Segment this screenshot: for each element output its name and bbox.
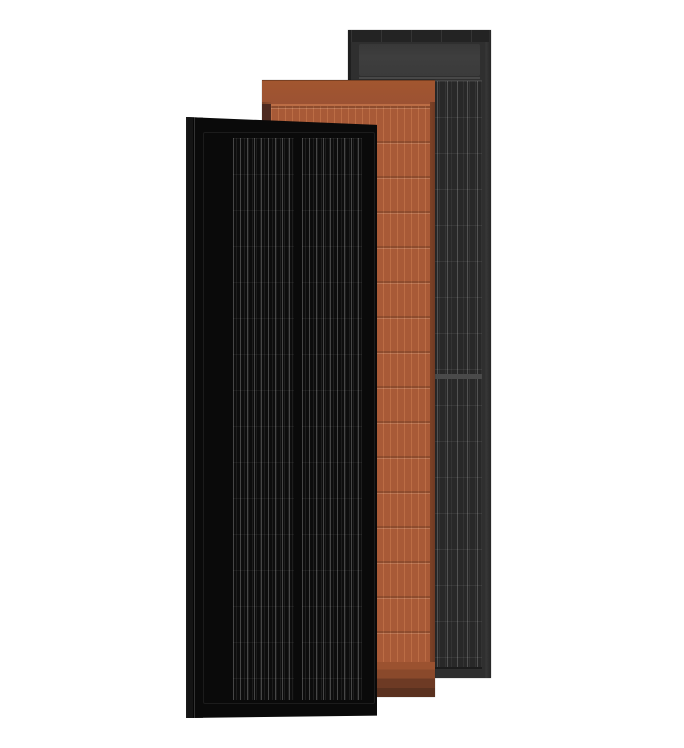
black-solar-panel [186, 117, 377, 718]
product-stage [0, 0, 684, 748]
terracotta-panel-header-band [262, 80, 435, 106]
black-panel-cell-grid [233, 138, 362, 700]
terracotta-panel-right-frame [430, 102, 435, 697]
black-panel-cell-column-left [233, 138, 294, 700]
black-panel-cell-column-right [302, 138, 363, 700]
black-panel-left-flange [186, 117, 203, 718]
gray-panel-top-cap [351, 30, 489, 42]
gray-panel-header-band [359, 44, 480, 76]
gray-panel-header-divider [359, 77, 480, 79]
